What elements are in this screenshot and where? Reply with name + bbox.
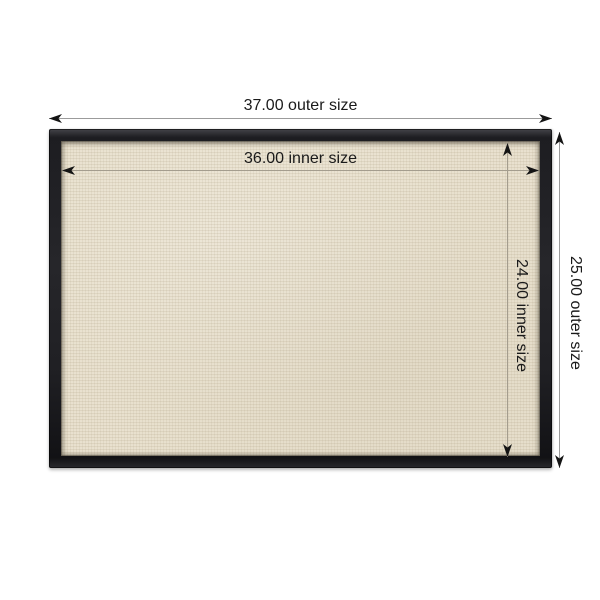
- inner-width-dimension-line: [62, 170, 539, 171]
- arrow-down-icon: [503, 444, 512, 457]
- arrow-right-icon: [539, 114, 552, 123]
- arrow-up-icon: [555, 132, 564, 145]
- arrow-up-icon: [503, 143, 512, 156]
- outer-height-label: 25.00 outer size: [564, 156, 584, 470]
- arrow-left-icon: [62, 166, 75, 175]
- arrow-down-icon: [555, 455, 564, 468]
- outer-width-label: 37.00 outer size: [49, 96, 552, 116]
- linen-canvas: [61, 141, 540, 456]
- outer-width-dimension-line: [49, 118, 552, 119]
- picture-frame: [49, 129, 552, 468]
- arrow-left-icon: [49, 114, 62, 123]
- inner-height-dimension-line: [507, 143, 508, 457]
- outer-height-dimension-line: [559, 132, 560, 468]
- dimension-diagram: 37.00 outer size 36.00 inner size 24.00 …: [0, 0, 600, 600]
- inner-width-label: 36.00 inner size: [62, 149, 539, 169]
- inner-height-label: 24.00 inner size: [510, 158, 530, 472]
